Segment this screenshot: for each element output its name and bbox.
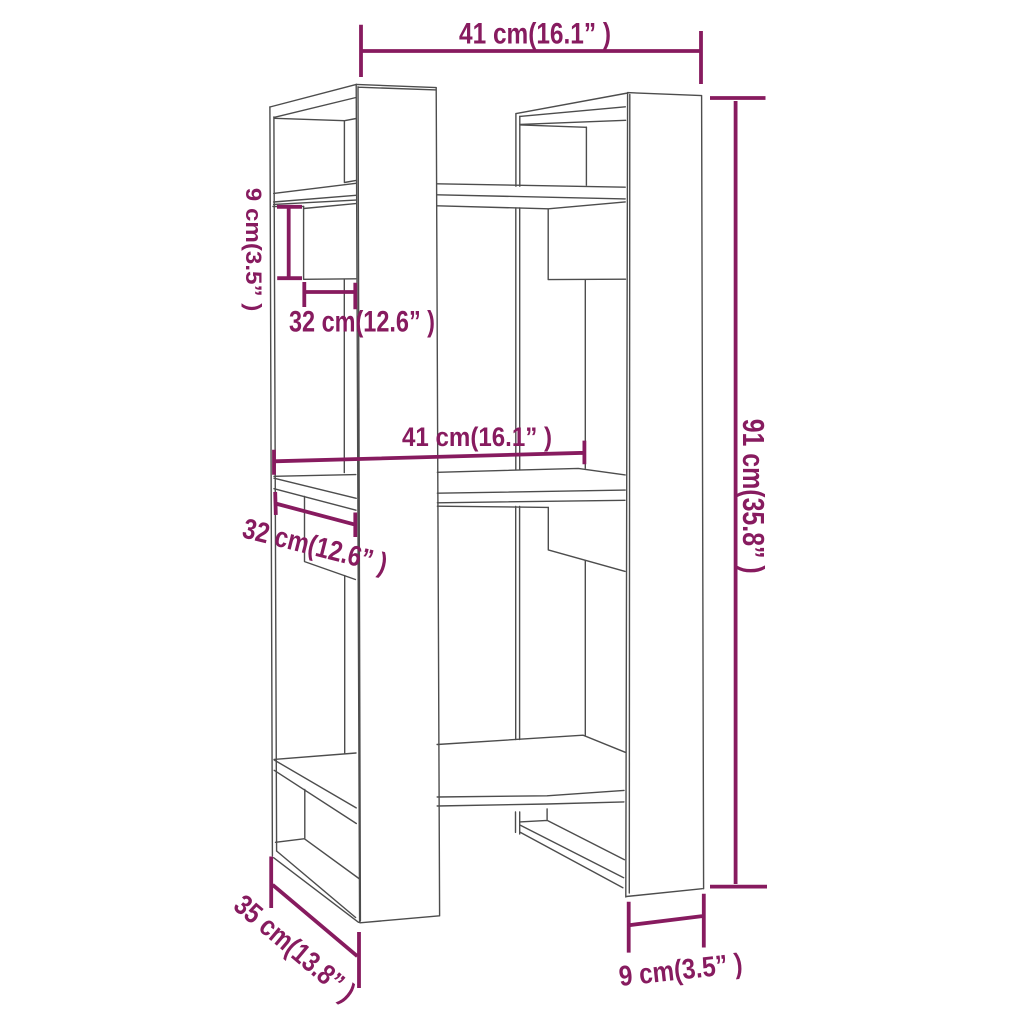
svg-text:32 cm(12.6” ): 32 cm(12.6” )	[289, 306, 435, 339]
svg-text:91 cm(35.8” ): 91 cm(35.8” )	[736, 419, 771, 574]
svg-text:41 cm(16.1” ): 41 cm(16.1” )	[402, 422, 552, 452]
svg-text:41 cm(16.1” ): 41 cm(16.1” )	[459, 18, 611, 51]
svg-text:9 cm(3.5” ): 9 cm(3.5” )	[241, 188, 266, 311]
